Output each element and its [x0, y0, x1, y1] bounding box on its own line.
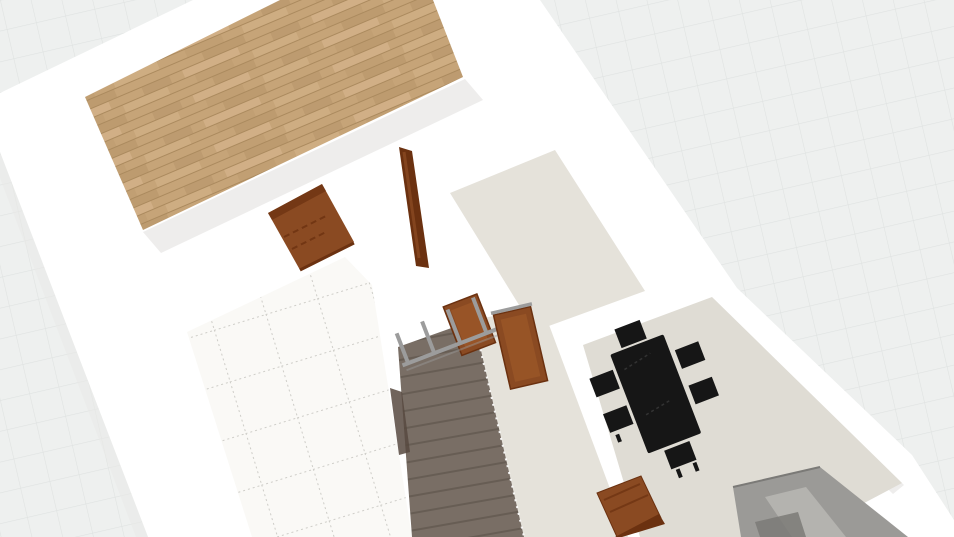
floorplan-3d-scene	[0, 0, 954, 537]
floorplan-3d-viewport	[0, 0, 954, 537]
